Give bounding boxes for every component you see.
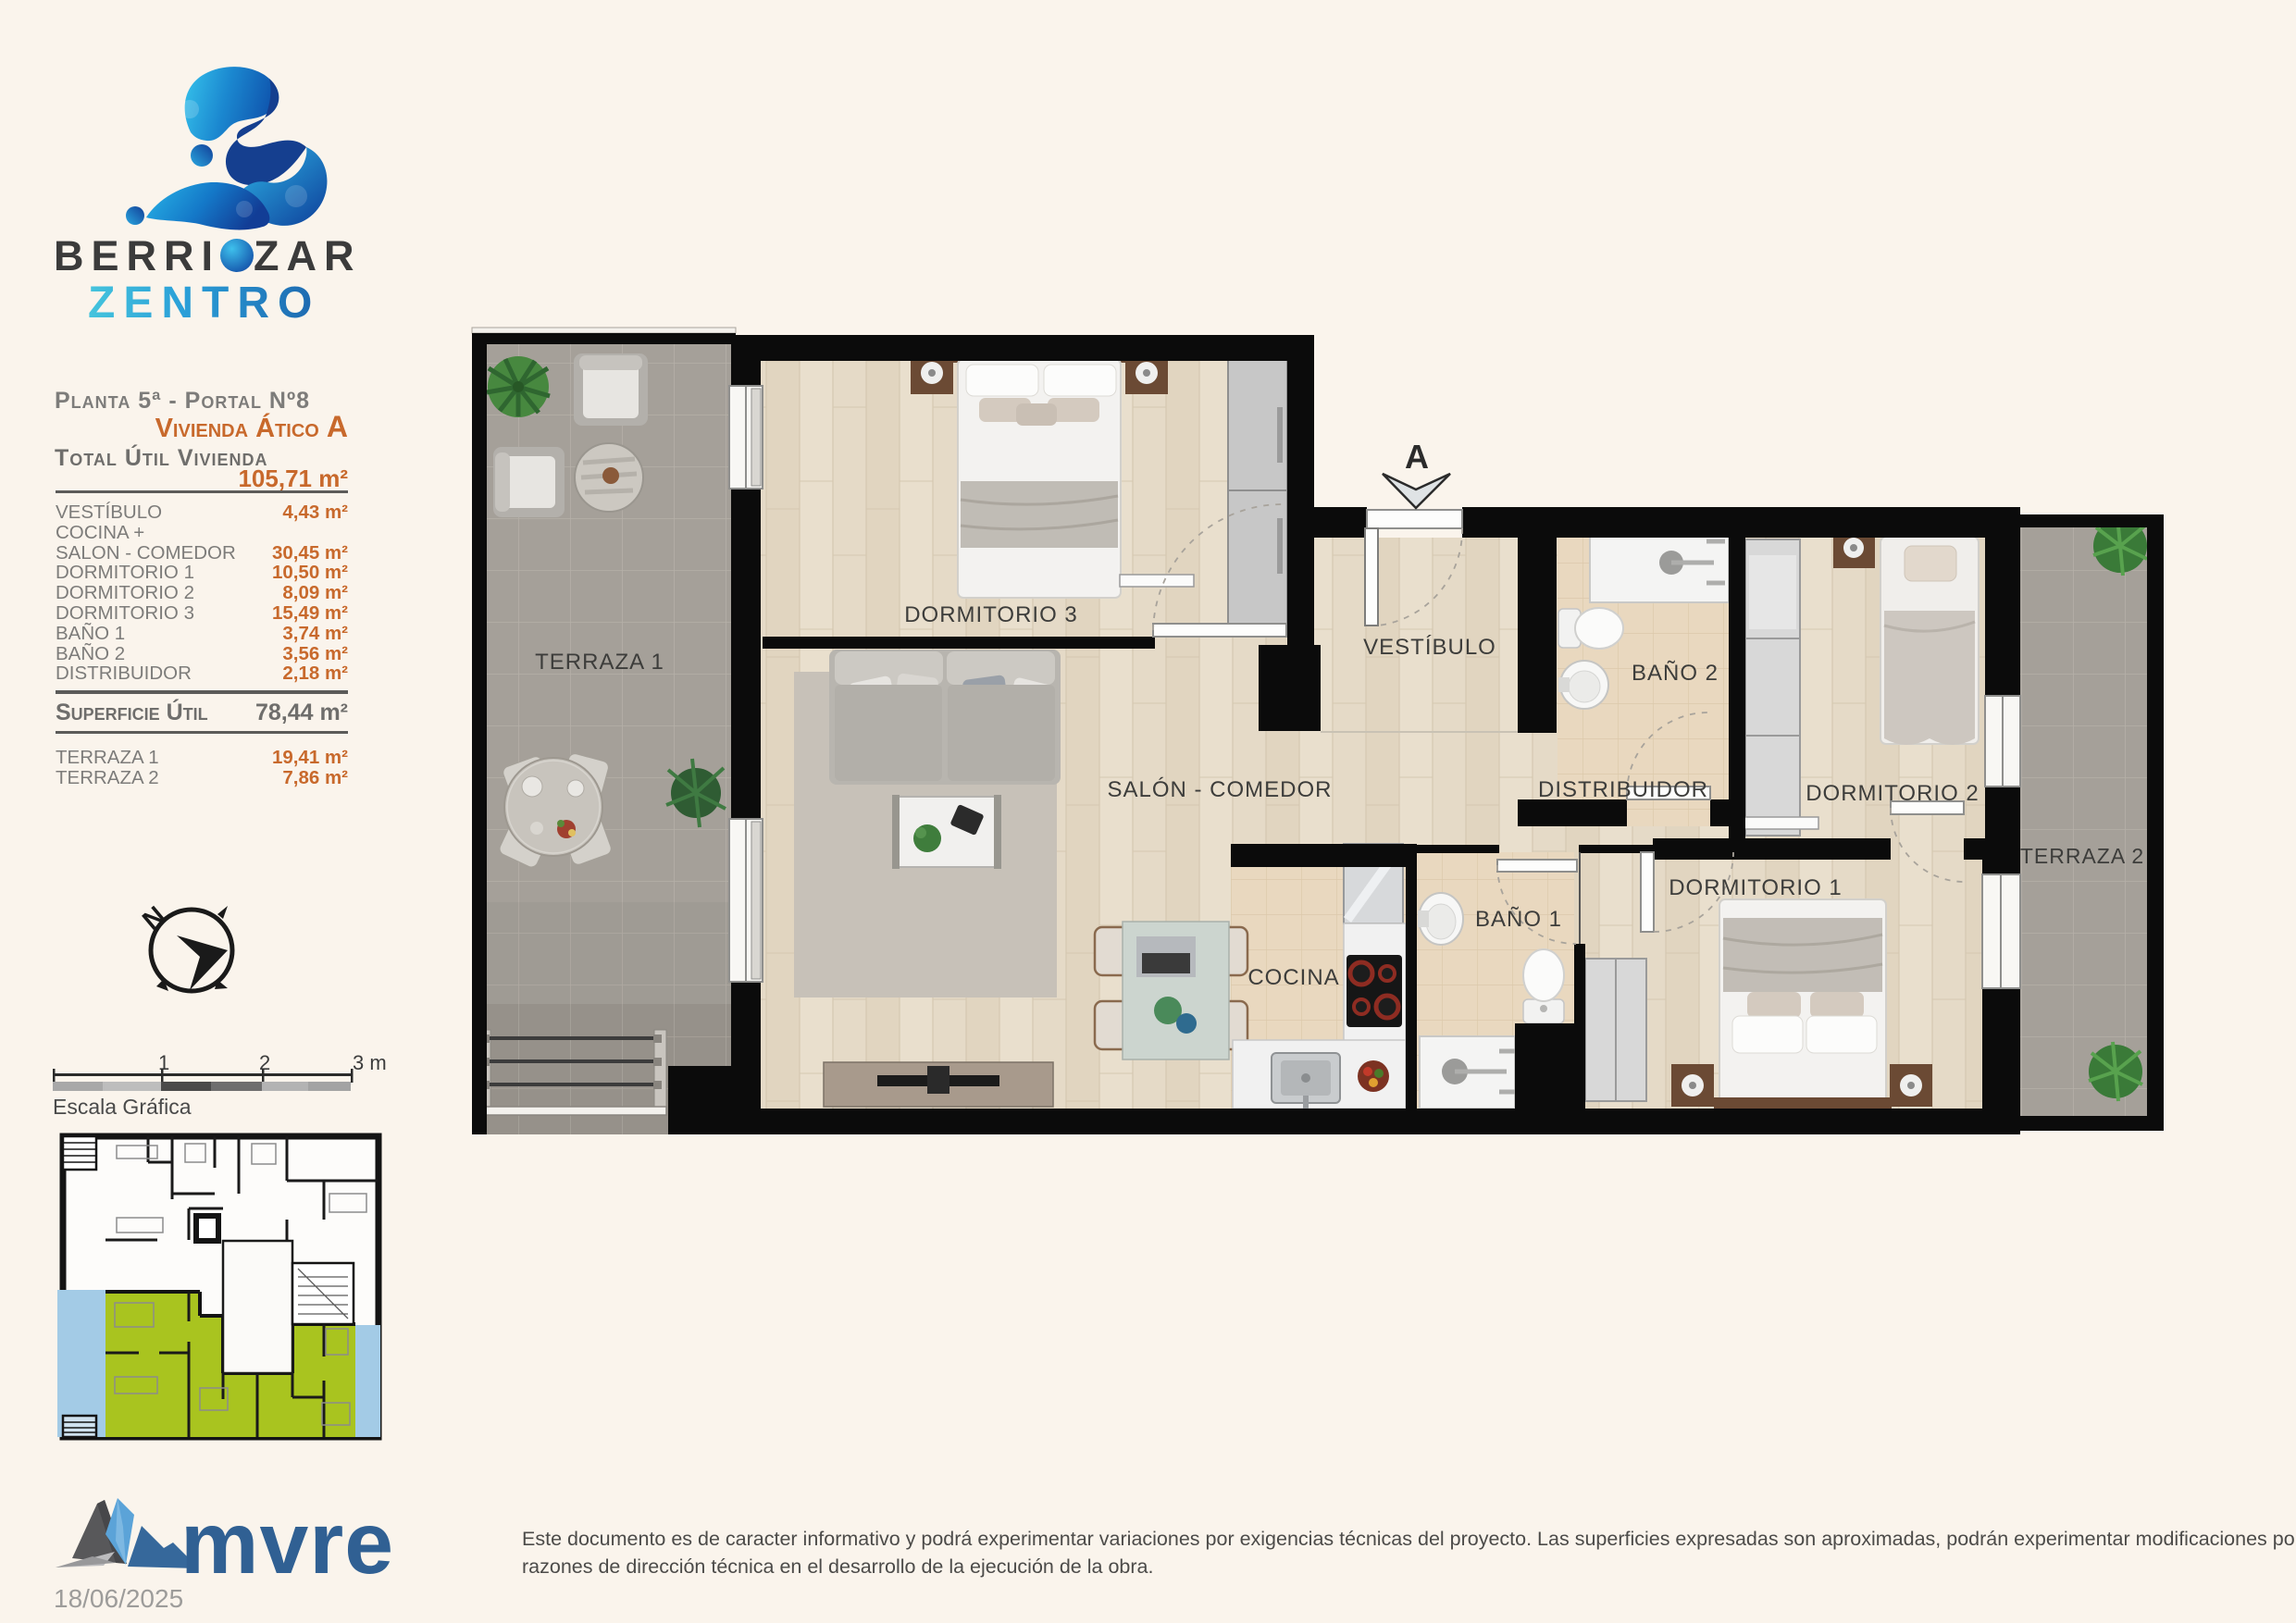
svg-text:COCINA: COCINA — [1247, 965, 1339, 990]
svg-text:SALÓN - COMEDOR: SALÓN - COMEDOR — [1107, 777, 1332, 802]
svg-text:BAÑO 2: BAÑO 2 — [1632, 661, 1719, 686]
svg-text:A: A — [1405, 438, 1429, 476]
svg-text:3 m.: 3 m. — [353, 1053, 386, 1074]
svg-text:TERRAZA 1: TERRAZA 1 — [535, 650, 664, 675]
svg-text:DORMITORIO 3: DORMITORIO 3 — [904, 602, 1078, 627]
svg-text:1: 1 — [158, 1053, 169, 1074]
svg-text:DORMITORIO 2: DORMITORIO 2 — [1806, 781, 1980, 806]
svg-text:DISTRIBUIDOR: DISTRIBUIDOR — [1538, 777, 1708, 802]
svg-text:N: N — [137, 901, 171, 936]
svg-text:TERRAZA 2: TERRAZA 2 — [2020, 844, 2144, 868]
svg-text:BAÑO 1: BAÑO 1 — [1475, 907, 1562, 932]
svg-text:DORMITORIO 1: DORMITORIO 1 — [1669, 875, 1843, 900]
svg-text:2: 2 — [259, 1053, 270, 1074]
svg-text:mvre: mvre — [180, 1494, 394, 1587]
svg-text:VESTÍBULO: VESTÍBULO — [1363, 635, 1496, 660]
